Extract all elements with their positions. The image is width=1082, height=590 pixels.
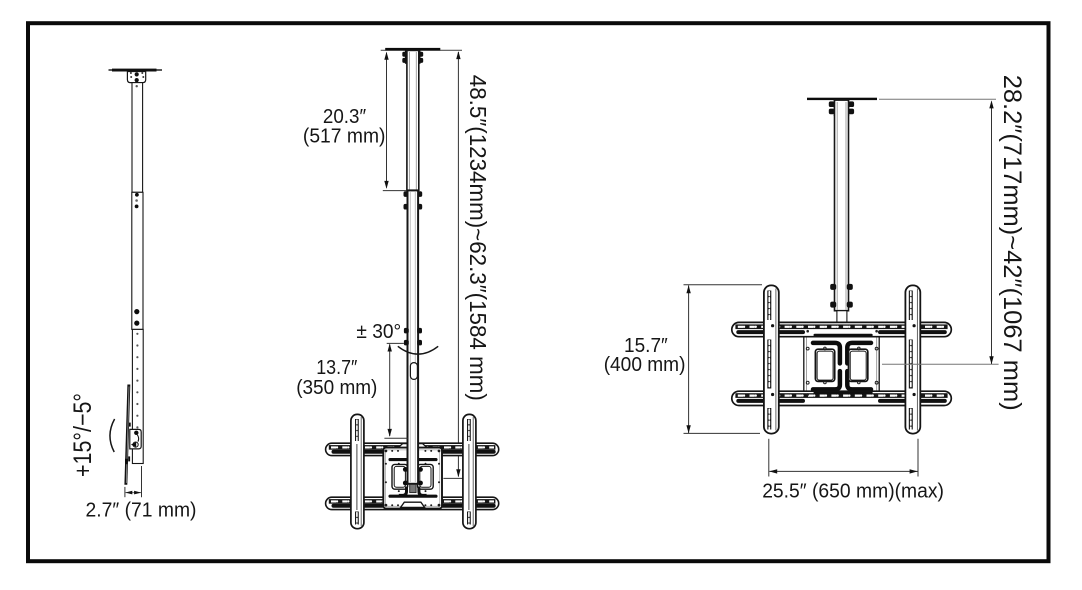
svg-text:25.5″ (650 mm)(max): 25.5″ (650 mm)(max) <box>762 479 944 502</box>
svg-text:48.5″(1234mm)~62.3″(1584 mm): 48.5″(1234mm)~62.3″(1584 mm) <box>465 75 491 401</box>
svg-text:28.2″(717mm)~42″(1067 mm): 28.2″(717mm)~42″(1067 mm) <box>998 75 1026 411</box>
svg-text:± 30°: ± 30° <box>356 320 401 343</box>
svg-text:2.7″ (71 mm): 2.7″ (71 mm) <box>86 499 197 522</box>
svg-text:(517 mm): (517 mm) <box>303 124 386 147</box>
svg-text:(350 mm): (350 mm) <box>296 376 377 399</box>
svg-text:+15°/−5°: +15°/−5° <box>69 393 97 477</box>
svg-text:(400 mm): (400 mm) <box>604 353 686 376</box>
